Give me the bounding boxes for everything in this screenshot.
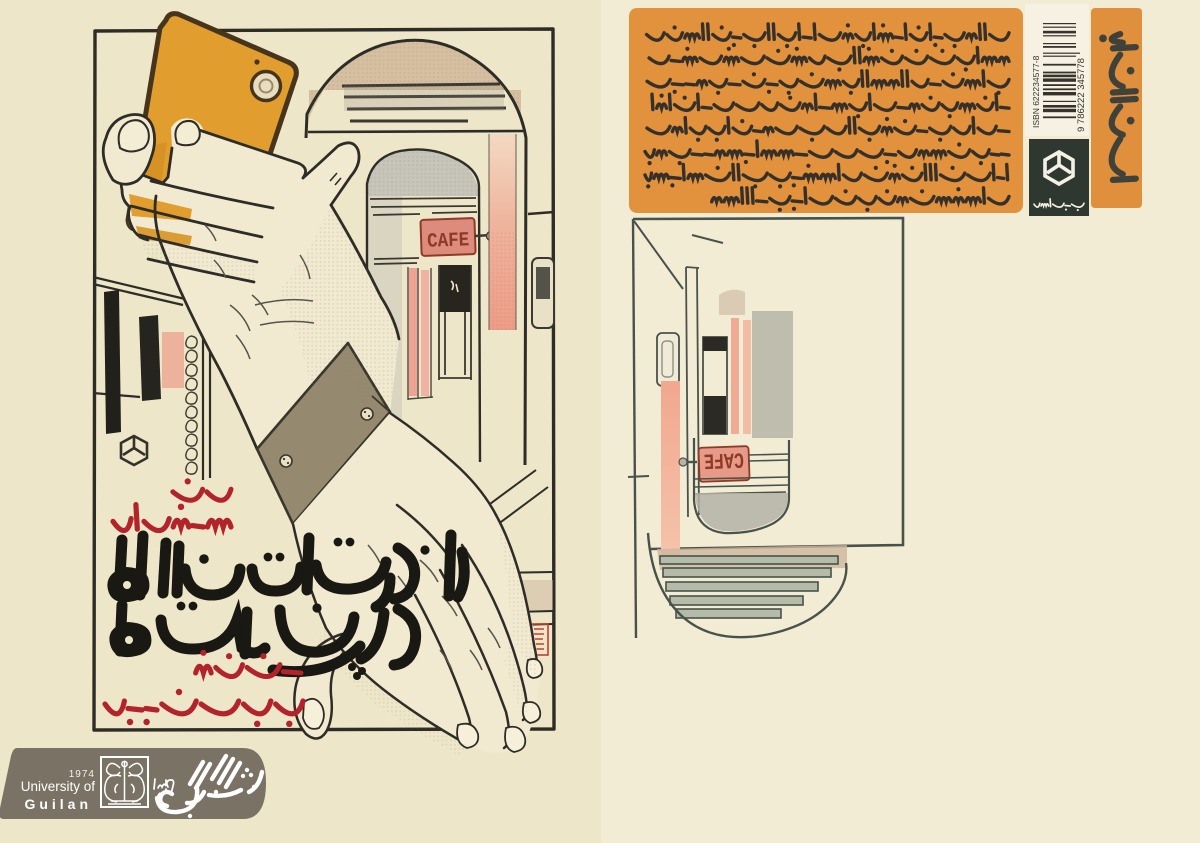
svg-text:University of: University of — [21, 779, 96, 794]
svg-text:Guilan: Guilan — [24, 796, 92, 812]
svg-text:ISBN 622234577-8: ISBN 622234577-8 — [1031, 55, 1041, 128]
svg-text:CAFE: CAFE — [703, 446, 744, 472]
svg-text:9 786222 345778: 9 786222 345778 — [1076, 58, 1087, 132]
svg-text:CAFE: CAFE — [427, 229, 470, 253]
